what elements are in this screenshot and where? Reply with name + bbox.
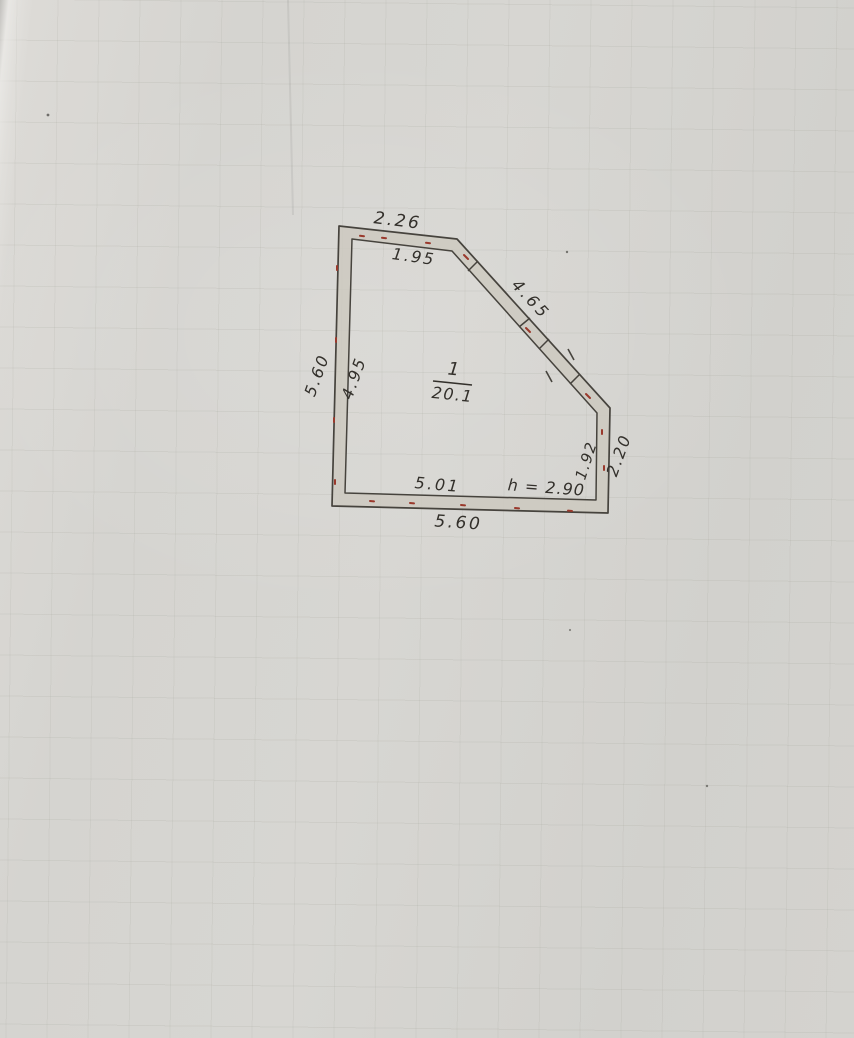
paper-speck: [706, 785, 708, 787]
paper-speck: [47, 114, 50, 117]
room-height-note: h = 2.90: [507, 475, 585, 499]
dimension-label-bottom-outer: 5.60: [434, 511, 483, 534]
paper-crease: [288, 0, 293, 215]
floor-plan-drawing: 2.26 1.95 5.60 4.95 4.65 1.92 2.20 5.01 …: [0, 0, 854, 1038]
room-label: 1 20.1: [431, 358, 474, 406]
paper-speck: [566, 251, 568, 253]
room-area: 20.1: [431, 383, 474, 406]
photographed-floor-plan-sheet: 2.26 1.95 5.60 4.95 4.65 1.92 2.20 5.01 …: [0, 0, 854, 1038]
dimension-label-left-outer: 5.60: [300, 351, 333, 398]
dimension-label-bottom-inner: 5.01: [414, 473, 461, 496]
paper-speck: [569, 629, 571, 631]
room-number: 1: [447, 358, 461, 380]
